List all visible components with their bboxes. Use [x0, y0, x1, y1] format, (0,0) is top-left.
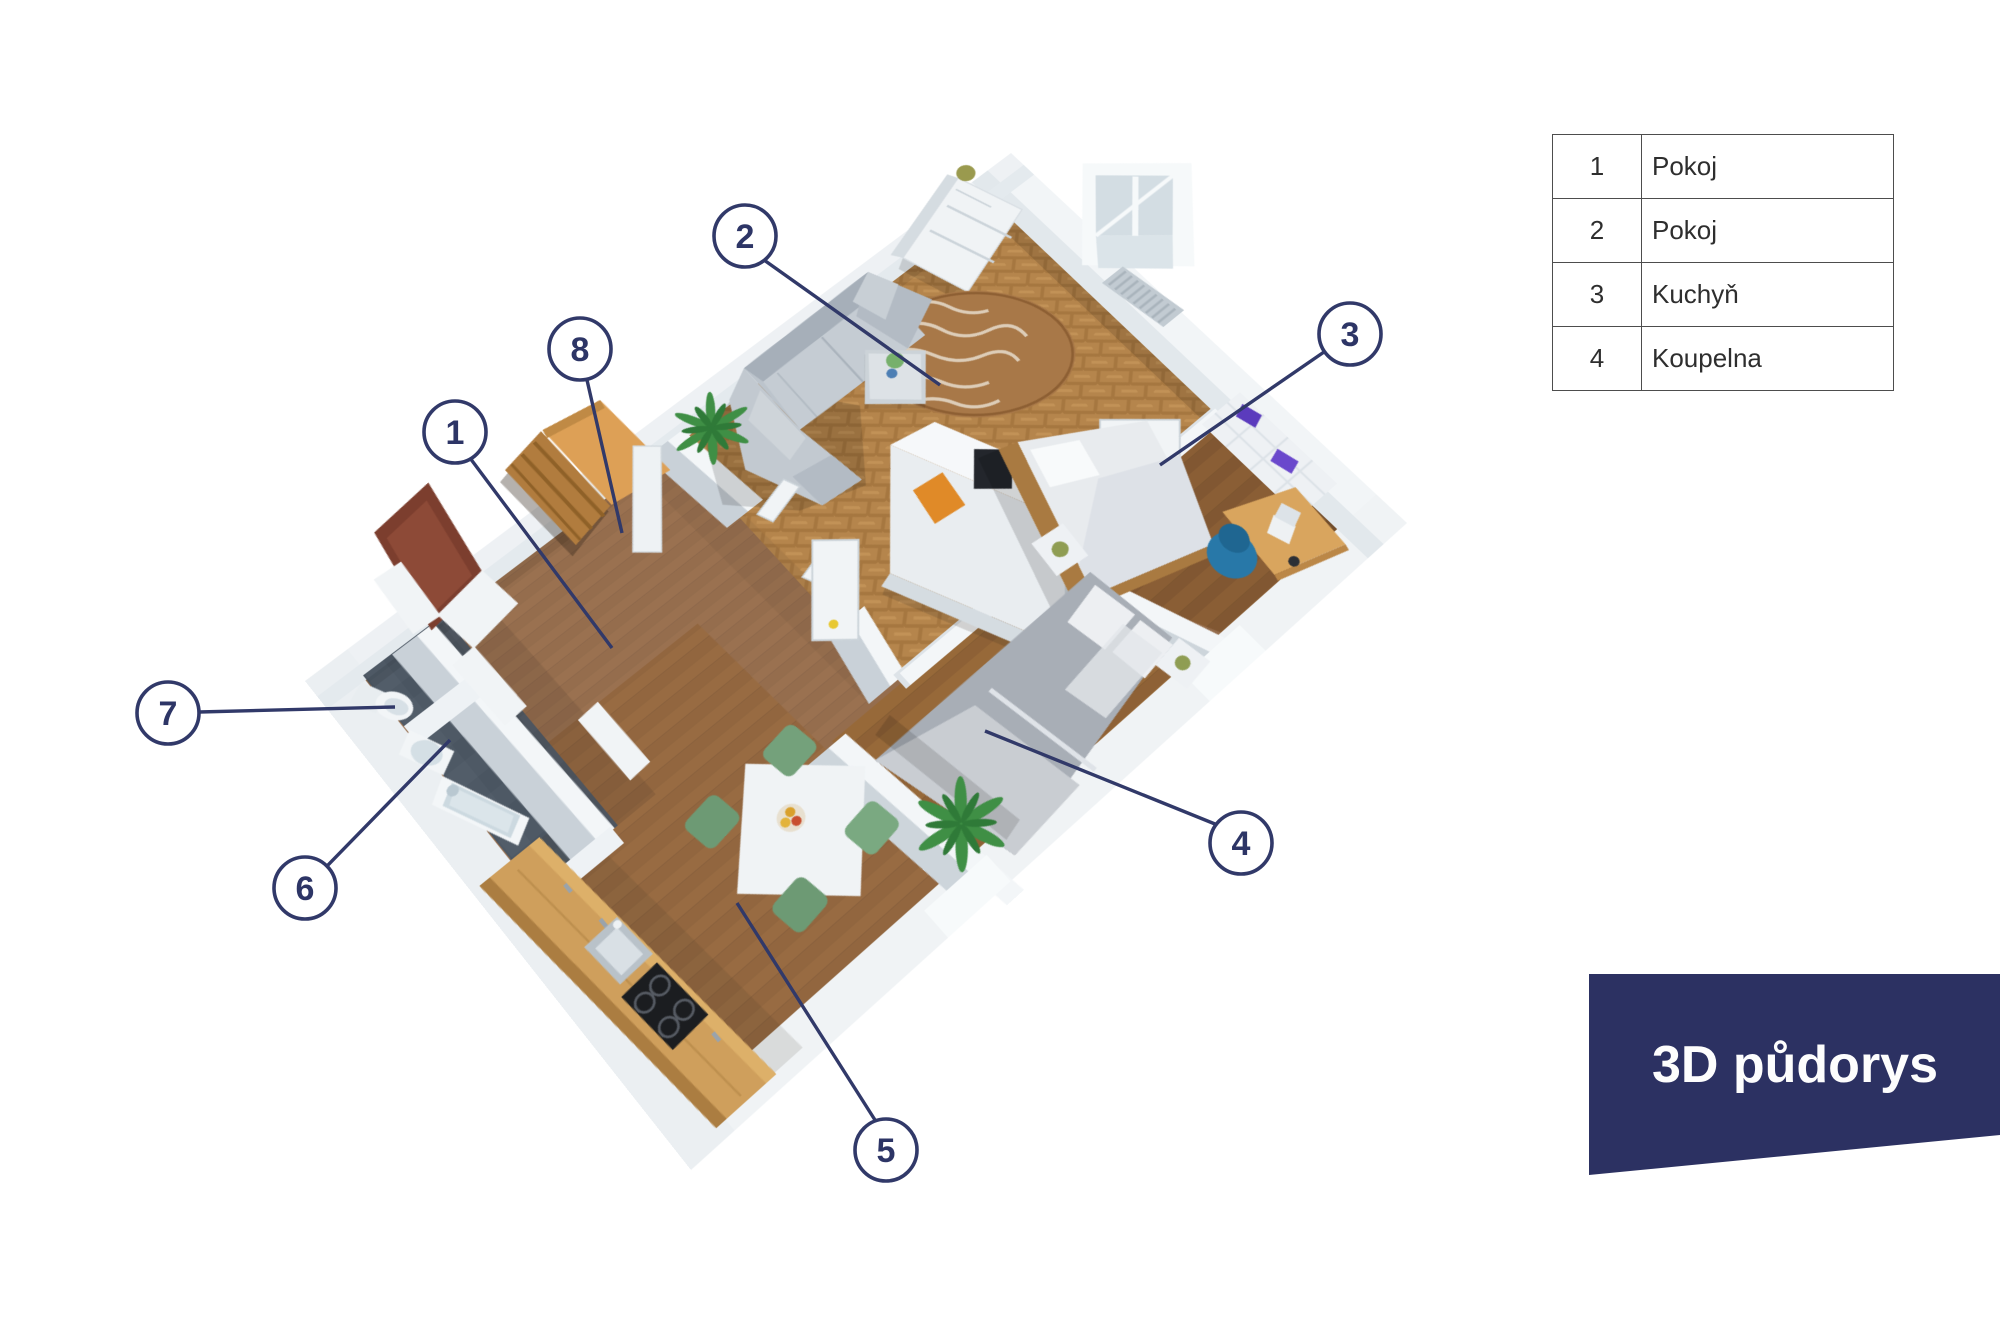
svg-text:2: 2 — [736, 218, 755, 256]
svg-text:3: 3 — [1341, 316, 1360, 354]
svg-text:8: 8 — [571, 331, 590, 369]
svg-text:4: 4 — [1232, 825, 1251, 863]
svg-text:3D půdorys: 3D půdorys — [1652, 1036, 1938, 1094]
svg-text:1: 1 — [446, 414, 465, 452]
svg-text:6: 6 — [296, 870, 315, 908]
svg-text:7: 7 — [159, 695, 178, 733]
svg-text:5: 5 — [877, 1132, 896, 1170]
